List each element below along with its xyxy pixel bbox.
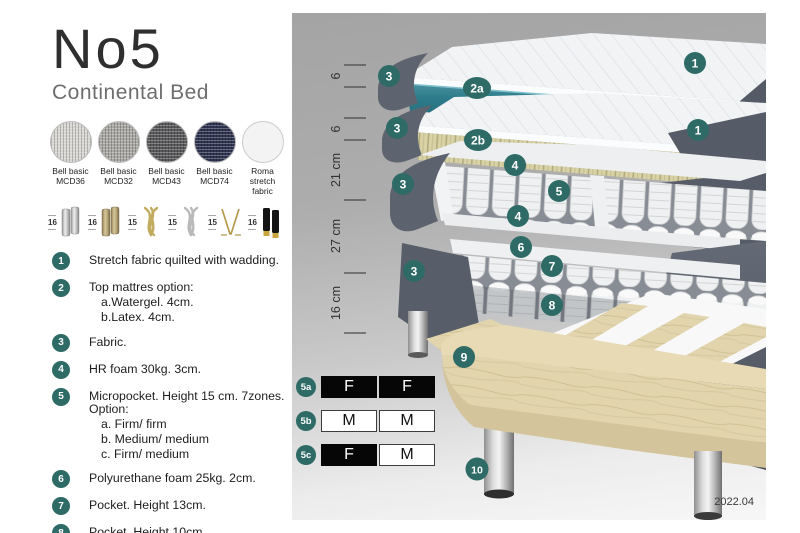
badge-2b-latex: 2b xyxy=(464,129,492,151)
fabric-swatch-image[interactable] xyxy=(146,121,188,163)
black-gold-tip-legs-icon xyxy=(258,204,284,240)
firmness-row-5b: 5b M M xyxy=(296,410,435,432)
leg-option-twisted-silver[interactable]: 15 xyxy=(168,204,206,240)
badge-3-fabric-box: 3 xyxy=(403,260,425,282)
badge-6-polyfoam: 6 xyxy=(510,236,532,258)
product-title: No5 xyxy=(52,20,292,79)
badge-2a-watergel: 2a xyxy=(463,77,491,99)
fabric-swatches: Bell basicMCD36 Bell basicMCD32 Bell bas… xyxy=(48,121,292,197)
list-item: 1 Stretch fabric quilted with wadding. xyxy=(52,252,292,270)
dimension-label: 6 xyxy=(329,72,343,79)
firmness-row-5c: 5c F M xyxy=(296,444,435,466)
leg-height-label: 16 xyxy=(248,213,257,232)
svg-text:3: 3 xyxy=(394,122,401,136)
fabric-swatch-roma[interactable]: Romastretch fabric xyxy=(240,121,285,197)
badge-3-fabric-2b: 3 xyxy=(386,117,408,139)
badge-10-metal-leg: 10 xyxy=(466,458,489,481)
firmness-cell: F xyxy=(321,376,377,398)
product-sheet: No5 Continental Bed Bell basicMCD36 Bell… xyxy=(0,0,800,533)
list-item: 2 Top mattres option: a.Watergel. 4cm. b… xyxy=(52,279,292,324)
item-number-badge: 6 xyxy=(52,470,70,488)
badge-4-hrfoam-top: 4 xyxy=(504,154,526,176)
item-number-badge: 7 xyxy=(52,497,70,515)
item-text: Stretch fabric quilted with wadding. xyxy=(89,254,279,268)
fabric-swatch-mcd32[interactable]: Bell basicMCD32 xyxy=(96,121,141,197)
firmness-row-badge: 5a xyxy=(296,377,316,397)
leg-height-label: 16 xyxy=(88,213,97,232)
item-text: Pocket. Height 10cm. xyxy=(89,526,206,533)
svg-text:3: 3 xyxy=(386,70,393,84)
twisted-gold-legs-icon xyxy=(138,204,164,240)
product-subtitle: Continental Bed xyxy=(52,81,292,105)
badge-7-pocket13: 7 xyxy=(541,255,563,277)
svg-text:6: 6 xyxy=(518,241,525,255)
dimension-label: 6 xyxy=(329,125,343,132)
badge-5-micropocket: 5 xyxy=(548,180,570,202)
firmness-row-badge: 5c xyxy=(296,445,316,465)
back-left-leg xyxy=(408,311,428,355)
svg-text:3: 3 xyxy=(400,178,407,192)
list-item: 5 Micropocket. Height 15 cm. 7zones. Opt… xyxy=(52,388,292,462)
cylinder-silver-legs-icon xyxy=(58,204,84,240)
firmness-cell: M xyxy=(379,410,435,432)
badge-9-wood: 9 xyxy=(453,346,475,368)
leg-height-label: 15 xyxy=(208,213,217,232)
item-text: Top mattres option: xyxy=(89,281,194,295)
badge-8-pocket10: 8 xyxy=(541,294,563,316)
info-column: No5 Continental Bed Bell basicMCD36 Bell… xyxy=(0,0,292,533)
svg-text:7: 7 xyxy=(549,260,556,274)
fabric-swatch-mcd43[interactable]: Bell basicMCD43 xyxy=(144,121,189,197)
list-item: 4 HR foam 30kg. 3cm. xyxy=(52,361,292,379)
component-list: 1 Stretch fabric quilted with wadding. 2… xyxy=(0,252,292,533)
firmness-row-badge: 5b xyxy=(296,411,316,431)
list-item: 7 Pocket. Height 13cm. xyxy=(52,497,292,515)
item-number-badge: 2 xyxy=(52,279,70,297)
item-text: Fabric. xyxy=(89,336,127,350)
dimension-label: 16 cm xyxy=(329,286,343,320)
firmness-cell: F xyxy=(321,444,377,466)
diagram-panel: 6 6 21 cm 27 cm 16 cm xyxy=(292,13,766,520)
leg-height-label: 15 xyxy=(128,213,137,232)
leg-option-brass[interactable]: 16 xyxy=(88,204,126,240)
firmness-cell: M xyxy=(379,444,435,466)
firmness-table: 5a F F 5b M M 5c F M xyxy=(296,376,435,478)
svg-text:1: 1 xyxy=(692,57,699,71)
leg-option-hairpin[interactable]: 15 xyxy=(208,204,246,240)
hairpin-gold-legs-icon xyxy=(218,204,244,240)
svg-text:2b: 2b xyxy=(471,134,485,148)
item-subtext: b.Latex. 4cm. xyxy=(89,311,194,325)
item-text: Pocket. Height 13cm. xyxy=(89,499,206,513)
fabric-swatch-image[interactable] xyxy=(242,121,284,163)
svg-text:10: 10 xyxy=(471,465,483,477)
leg-options: 16 16 15 xyxy=(48,204,292,240)
fabric-swatch-image[interactable] xyxy=(50,121,92,163)
fabric-swatch-mcd36[interactable]: Bell basicMCD36 xyxy=(48,121,93,197)
item-text: Polyurethane foam 25kg. 2cm. xyxy=(89,472,256,486)
svg-text:8: 8 xyxy=(549,299,556,313)
list-item: 8 Pocket. Height 10cm. xyxy=(52,524,292,533)
badge-1-quilt-second: 1 xyxy=(687,119,709,141)
dimension-label: 21 cm xyxy=(329,153,343,187)
badge-3-fabric-mattress: 3 xyxy=(392,173,414,195)
fabric-swatch-mcd74[interactable]: Bell basicMCD74 xyxy=(192,121,237,197)
svg-text:4: 4 xyxy=(515,210,522,224)
svg-text:3: 3 xyxy=(411,265,418,279)
twisted-silver-legs-icon xyxy=(178,204,204,240)
item-subtext: a.Watergel. 4cm. xyxy=(89,296,194,310)
leg-option-silver[interactable]: 16 xyxy=(48,204,86,240)
list-item: 6 Polyurethane foam 25kg. 2cm. xyxy=(52,470,292,488)
dimension-ruler: 6 6 21 cm 27 cm 16 cm xyxy=(329,65,366,333)
leg-height-label: 15 xyxy=(168,213,177,232)
firmness-cell: F xyxy=(379,376,435,398)
svg-text:9: 9 xyxy=(461,351,468,365)
fabric-swatch-label: Bell basicMCD36 xyxy=(48,166,93,186)
version-label: 2022.04 xyxy=(714,496,754,508)
firmness-row-5a: 5a F F xyxy=(296,376,435,398)
fabric-swatch-label: Bell basicMCD43 xyxy=(144,166,189,186)
item-number-badge: 8 xyxy=(52,524,70,533)
item-subtext: a. Firm/ firm xyxy=(89,418,292,432)
item-number-badge: 5 xyxy=(52,388,70,406)
svg-text:2a: 2a xyxy=(470,82,484,96)
leg-option-twisted-gold[interactable]: 15 xyxy=(128,204,166,240)
item-number-badge: 4 xyxy=(52,361,70,379)
fabric-swatch-label: Bell basicMCD74 xyxy=(192,166,237,186)
item-number-badge: 3 xyxy=(52,334,70,352)
item-number-badge: 1 xyxy=(52,252,70,270)
item-subtext: c. Firm/ medium xyxy=(89,448,292,462)
title-block: No5 Continental Bed xyxy=(52,20,292,105)
svg-text:4: 4 xyxy=(512,159,519,173)
cylinder-brass-legs-icon xyxy=(98,204,124,240)
svg-text:5: 5 xyxy=(556,185,563,199)
badge-4-hrfoam-bottom: 4 xyxy=(507,205,529,227)
dimension-label: 27 cm xyxy=(329,219,343,253)
svg-text:1: 1 xyxy=(695,124,702,138)
list-item: 3 Fabric. xyxy=(52,334,292,352)
item-text: HR foam 30kg. 3cm. xyxy=(89,363,201,377)
item-subtext: b. Medium/ medium xyxy=(89,433,292,447)
leg-option-black-gold[interactable]: 16 xyxy=(248,204,286,240)
badge-1-quilt-top: 1 xyxy=(684,52,706,74)
leg-height-label: 16 xyxy=(48,213,57,232)
firmness-cell: M xyxy=(321,410,377,432)
fabric-swatch-label: Bell basicMCD32 xyxy=(96,166,141,186)
item-text: Micropocket. Height 15 cm. 7zones. Optio… xyxy=(89,390,292,418)
fabric-swatch-image[interactable] xyxy=(194,121,236,163)
fabric-swatch-label: Romastretch fabric xyxy=(240,166,285,197)
fabric-swatch-image[interactable] xyxy=(98,121,140,163)
badge-3-fabric-2a: 3 xyxy=(378,65,400,87)
